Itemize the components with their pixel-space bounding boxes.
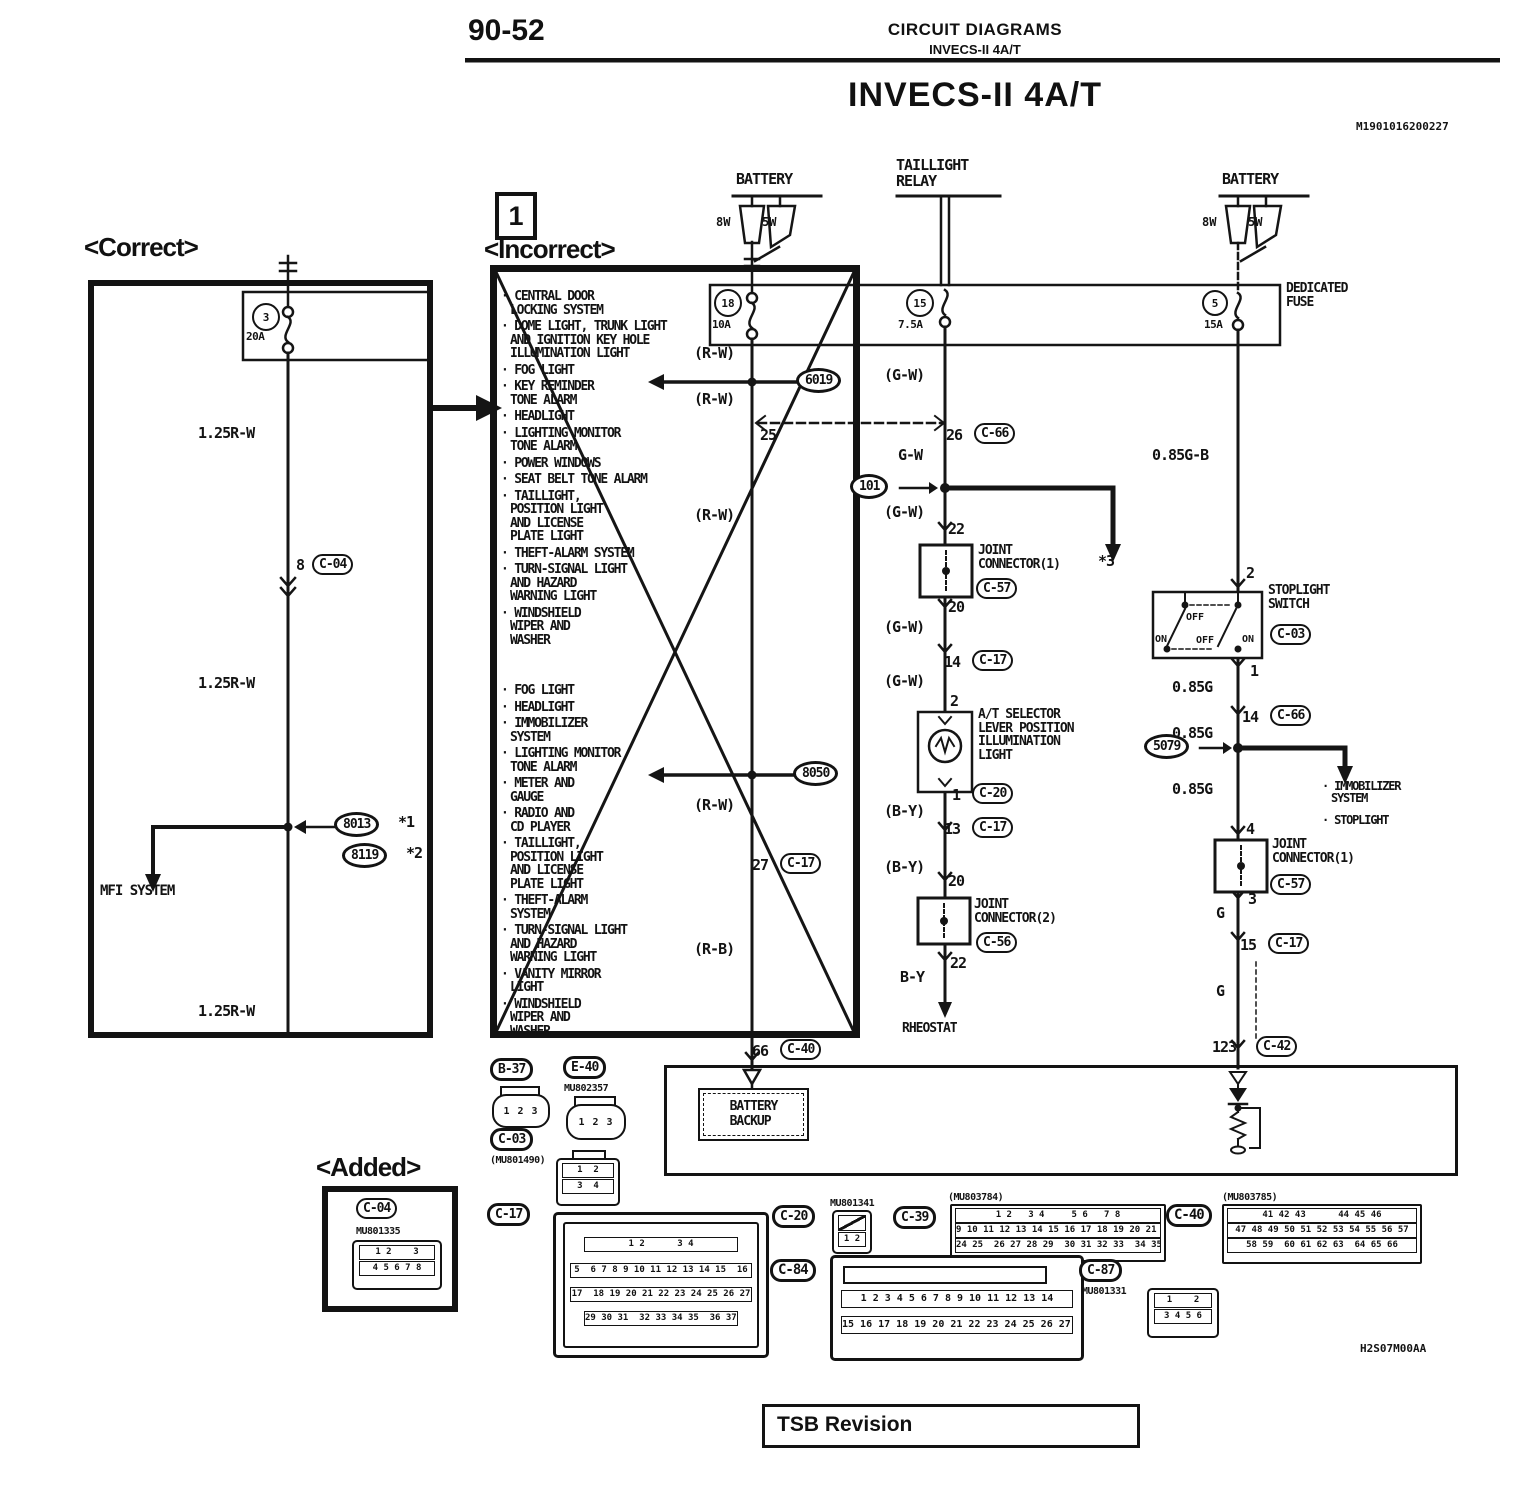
pin-number: 8 (296, 556, 304, 574)
list-item: LIGHTING MONITOR TONE ALARM (501, 747, 717, 774)
footnote-2: *2 (406, 844, 422, 862)
wire-label: (G-W) (884, 505, 924, 521)
pin-row: 3 4 5 6 (1154, 1309, 1212, 1324)
connector-ref-c57: C-57 (1270, 874, 1311, 895)
wire-label: (B-Y) (884, 804, 924, 820)
pin-number: 22 (950, 954, 966, 972)
splice-8119: 8119 (342, 843, 387, 868)
stoplight-switch-label: STOPLIGHT SWITCH (1268, 584, 1329, 611)
wire-label: G (1216, 906, 1224, 922)
switch-state-off: OFF (1186, 612, 1204, 623)
wire-label: G (1216, 984, 1224, 1000)
pin-number: 2 (950, 692, 958, 710)
pin-number: 3 (1248, 890, 1256, 908)
list-item: TURN-SIGNAL LIGHT AND HAZARD WARNING LIG… (501, 563, 717, 604)
bulb-8w-label: 8W (1202, 215, 1216, 229)
bulb-5w-label: 5W (762, 215, 776, 229)
b37-connector-icon: 1 2 3 (492, 1094, 550, 1128)
pin-row: 1 2 3 4 (584, 1237, 738, 1252)
incorrect-system-list-top: CENTRAL DOOR LOCKING SYSTEM DOME LIGHT, … (501, 290, 717, 650)
list-item: WINDSHIELD WIPER AND WASHER (501, 607, 717, 648)
wire-label: (G-W) (884, 368, 924, 384)
splice-6019: 6019 (796, 368, 841, 393)
connector-ref-c66: C-66 (974, 423, 1015, 444)
list-item: LIGHTING MONITOR TONE ALARM (501, 427, 717, 454)
pin-row: 4 5 6 7 8 (359, 1261, 435, 1276)
list-item: VANITY MIRROR LIGHT (501, 968, 717, 995)
wire-label: (R-W) (694, 508, 734, 524)
part-number: MU802357 (564, 1083, 608, 1094)
wire-label: 0.85G-B (1152, 448, 1208, 464)
c40-connector-icon: 41 42 43 44 45 46 47 48 49 50 51 52 53 5… (1222, 1204, 1422, 1264)
connector-ref-c40: C-40 (1166, 1204, 1212, 1227)
connector-ref-e40: E-40 (563, 1056, 606, 1079)
list-item: RADIO AND CD PLAYER (501, 807, 717, 834)
wire-label: 1.25R-W (198, 426, 254, 442)
figure-code: H2S07M00AA (1360, 1342, 1426, 1355)
immobilizer-system-label: IMMOBILIZER SYSTEM (1322, 780, 1400, 805)
fuse-15-number: 15 (906, 289, 934, 317)
pin-row: 3 4 (562, 1179, 614, 1194)
pin-row: 1 2 3 4 5 6 7 8 (955, 1208, 1161, 1223)
connector-ref-c17: C-17 (972, 817, 1013, 838)
pin-number: 15 (1240, 936, 1256, 954)
c84-connector-icon: 1 2 3 4 5 6 7 8 9 10 11 12 13 14 15 16 1… (830, 1255, 1084, 1361)
connector-ref-c57: C-57 (976, 578, 1017, 599)
doc-code: M1901016200227 (1356, 120, 1449, 133)
connector-ref-c66: C-66 (1270, 705, 1311, 726)
battery-label: BATTERY (1222, 172, 1278, 188)
wire-label: (B-Y) (884, 860, 924, 876)
pin-row: 1 2 3 4 5 6 7 8 9 10 11 12 13 14 (841, 1290, 1073, 1308)
pin-number: 20 (948, 598, 964, 616)
tsb-revision-box: TSB Revision (762, 1404, 1140, 1448)
c39-connector-icon: 1 2 3 4 5 6 7 8 9 10 11 12 13 14 15 16 1… (950, 1204, 1166, 1262)
wire-label: (R-W) (694, 346, 734, 362)
pin-row: 1 2 (838, 1232, 866, 1247)
pin-row: 58 59 60 61 62 63 64 65 66 (1227, 1238, 1417, 1253)
section-title: CIRCUIT DIAGRAMS (700, 20, 1250, 40)
list-item: HEADLIGHT (501, 410, 717, 424)
connector-ref-c84: C-84 (770, 1259, 816, 1282)
at-selector-label: A/T SELECTOR LEVER POSITION ILLUMINATION… (978, 708, 1074, 763)
wire-label: (R-W) (694, 798, 734, 814)
connector-ref-c42: C-42 (1256, 1036, 1297, 1057)
connector-ref-c56: C-56 (976, 932, 1017, 953)
part-number: MU801331 (1082, 1286, 1126, 1297)
pin-number: 26 (946, 426, 962, 444)
pin-number: 4 (1246, 820, 1254, 838)
e40-connector-icon: 1 2 3 (566, 1104, 626, 1140)
connector-ref-b37: B-37 (490, 1058, 533, 1081)
pin-row: 5 6 7 8 9 10 11 12 13 14 15 16 (570, 1263, 752, 1278)
joint-connector-1-label: JOINT CONNECTOR(1) (978, 544, 1060, 571)
list-item: DOME LIGHT, TRUNK LIGHT AND IGNITION KEY… (501, 320, 717, 361)
pin-number: 20 (948, 872, 964, 890)
c17-connector-icon: 1 2 3 4 5 6 7 8 9 10 11 12 13 14 15 16 1… (553, 1212, 769, 1358)
wire-label: 0.85G (1172, 782, 1212, 798)
fuse-15-amp: 7.5A (898, 318, 923, 331)
connector-ref-c40: C-40 (780, 1039, 821, 1060)
part-number: (MU803784) (948, 1192, 1003, 1203)
splice-8013: 8013 (334, 812, 379, 837)
footnote-1: *1 (398, 813, 414, 831)
joint-connector-1-label: JOINT CONNECTOR(1) (1272, 838, 1354, 865)
connector-ref-c87: C-87 (1079, 1259, 1122, 1282)
fuse-5-number: 5 (1202, 290, 1228, 316)
connector-ref-c17: C-17 (487, 1203, 530, 1226)
connector-ref-c17: C-17 (780, 853, 821, 874)
fuse-5-amp: 15A (1204, 318, 1222, 331)
battery-backup-label: BATTERY BACKUP (730, 1100, 778, 1129)
pin-row: 9 10 11 12 13 14 15 16 17 18 19 20 21 22… (955, 1223, 1161, 1238)
connector-ref-c20: C-20 (772, 1205, 815, 1228)
connector-ref-c03: C-03 (490, 1128, 533, 1151)
wire-label: (R-W) (694, 392, 734, 408)
list-item: KEY REMINDER TONE ALARM (501, 380, 717, 407)
pin-row: 29 30 31 32 33 34 35 36 37 38 (584, 1311, 738, 1326)
wire-label: (R-B) (694, 942, 734, 958)
splice-8050: 8050 (793, 761, 838, 786)
list-item: FOG LIGHT (501, 684, 717, 698)
wire-label: G-W (898, 448, 922, 464)
pin-number: 22 (948, 520, 964, 538)
pin-row: 1 2 3 (359, 1245, 435, 1260)
pin-row: 15 16 17 18 19 20 21 22 23 24 25 26 27 2… (841, 1316, 1073, 1334)
bulb-5w-label: 5W (1248, 215, 1262, 229)
switch-state-on: ON (1242, 634, 1254, 645)
c87-connector-icon: 1 2 3 4 5 6 (1147, 1288, 1219, 1338)
wire-label: (G-W) (884, 674, 924, 690)
pin-row: 1 2 3 (503, 1106, 538, 1117)
connector-ref-c17: C-17 (972, 650, 1013, 671)
list-item: THEFT-ALARM SYSTEM (501, 894, 717, 921)
fuse-18-amp: 10A (712, 318, 730, 331)
pin-number: 14 (1242, 708, 1258, 726)
added-heading: <Added> (316, 1152, 420, 1183)
wire-label: 1.25R-W (198, 676, 254, 692)
part-number: MU801335 (356, 1226, 400, 1237)
connector-ref-c17: C-17 (1268, 933, 1309, 954)
pin-number: 25 (760, 426, 776, 444)
dedicated-fuse-label: DEDICATED FUSE (1286, 282, 1347, 309)
wire-label: 0.85G (1172, 680, 1212, 696)
taillight-relay-label: TAILLIGHT RELAY (896, 158, 968, 189)
switch-state-on: ON (1155, 634, 1167, 645)
pin-number: 66 (752, 1042, 768, 1060)
section-subtitle: INVECS-II 4A/T (700, 42, 1250, 57)
list-item: IMMOBILIZER SYSTEM (501, 717, 717, 744)
battery-label: BATTERY (736, 172, 792, 188)
pin-number: 123 (1212, 1038, 1236, 1056)
fuse-3-amp: 20A (246, 330, 264, 343)
wire-label: (G-W) (884, 620, 924, 636)
tsb-revision-label: TSB Revision (777, 1413, 1137, 1437)
list-item: THEFT-ALARM SYSTEM (501, 547, 717, 561)
mfi-system-label: MFI SYSTEM (100, 884, 174, 899)
pin-row: 17 18 19 20 21 22 23 24 25 26 27 (570, 1287, 752, 1302)
pin-row: 1 2 3 (578, 1117, 613, 1128)
incorrect-system-list-bottom: FOG LIGHT HEADLIGHT IMMOBILIZER SYSTEM L… (501, 684, 717, 1041)
callout-1-marker: 1 (495, 192, 537, 240)
list-item: TAILLIGHT, POSITION LIGHT AND LICENSE PL… (501, 837, 717, 891)
list-item: POWER WINDOWS (501, 457, 717, 471)
footnote-3: *3 (1098, 552, 1114, 570)
rheostat-label: RHEOSTAT (902, 1022, 957, 1036)
correct-heading: <Correct> (84, 232, 198, 263)
list-item: HEADLIGHT (501, 701, 717, 715)
pin-row: 24 25 26 27 28 29 30 31 32 33 34 35 (955, 1238, 1161, 1253)
part-number: (MU801490) (490, 1155, 545, 1166)
c20-connector-icon: 1 2 (832, 1210, 872, 1254)
wire-label: 1.25R-W (198, 1004, 254, 1020)
switch-state-off: OFF (1196, 635, 1214, 646)
c04-connector-icon: 1 2 3 4 5 6 7 8 (352, 1240, 442, 1290)
list-item: WINDSHIELD WIPER AND WASHER (501, 998, 717, 1039)
diagram-title: INVECS-II 4A/T (600, 76, 1350, 115)
wire-label: B-Y (900, 970, 924, 986)
c03-connector-icon: 1 2 3 4 (556, 1158, 620, 1206)
connector-ref-c39: C-39 (893, 1206, 936, 1229)
pin-number: 14 (944, 653, 960, 671)
connector-ref-c03: C-03 (1270, 624, 1311, 645)
pin-number: 2 (1246, 564, 1254, 582)
correct-box (88, 280, 433, 1038)
connector-ref-c20: C-20 (972, 783, 1013, 804)
incorrect-heading: <Incorrect> (484, 234, 615, 265)
fuse-18-number: 18 (714, 289, 742, 317)
pin-row: 47 48 49 50 51 52 53 54 55 56 57 (1227, 1223, 1417, 1238)
splice-5079: 5079 (1144, 734, 1189, 759)
list-item: CENTRAL DOOR LOCKING SYSTEM (501, 290, 717, 317)
connector-ref-c04: C-04 (312, 554, 353, 575)
fuse-3-number: 3 (252, 303, 280, 331)
pin-row: 1 2 (562, 1163, 614, 1178)
list-item: FOG LIGHT (501, 364, 717, 378)
page-number: 90-52 (468, 14, 545, 48)
pin-number: 27 (752, 856, 768, 874)
battery-backup-box: BATTERY BACKUP (698, 1088, 809, 1141)
part-number: MU801341 (830, 1198, 874, 1209)
list-item: SEAT BELT TONE ALARM (501, 473, 717, 487)
connector-ref-c04: C-04 (356, 1198, 397, 1219)
pin-number: 13 (944, 820, 960, 838)
stoplight-label: STOPLIGHT (1322, 814, 1388, 826)
pin-number: 1 (1250, 662, 1258, 680)
pin-number: 1 (952, 786, 960, 804)
joint-connector-2-label: JOINT CONNECTOR(2) (974, 898, 1056, 925)
circuit-diagram-page: 90-52 CIRCUIT DIAGRAMS INVECS-II 4A/T IN… (0, 0, 1520, 1486)
pin-row: 1 2 (1154, 1293, 1212, 1308)
list-item: TAILLIGHT, POSITION LIGHT AND LICENSE PL… (501, 490, 717, 544)
part-number: (MU803785) (1222, 1192, 1277, 1203)
list-item: METER AND GAUGE (501, 777, 717, 804)
list-item: TURN-SIGNAL LIGHT AND HAZARD WARNING LIG… (501, 924, 717, 965)
bulb-8w-label: 8W (716, 215, 730, 229)
pin-row: 41 42 43 44 45 46 (1227, 1208, 1417, 1223)
